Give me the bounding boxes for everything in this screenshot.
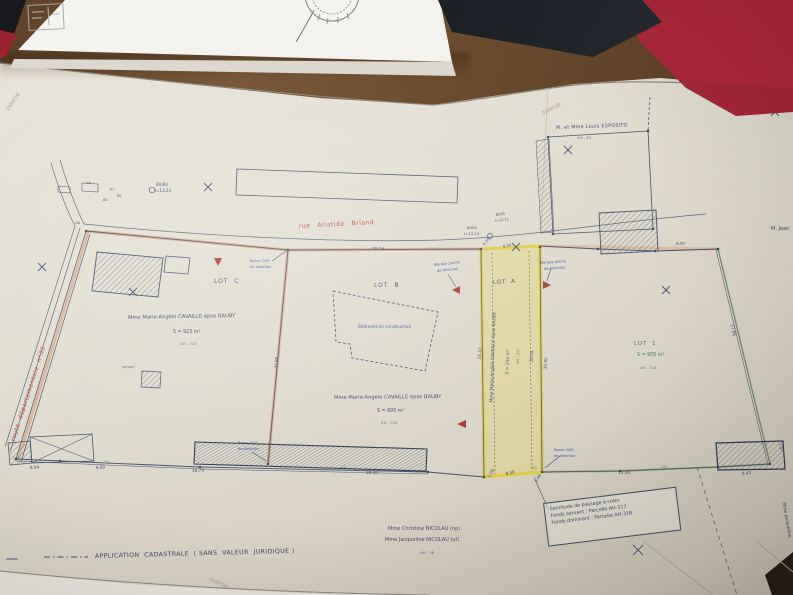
- plan-title: APPLICATION CADASTRALE ( SANS VALEUR JUR…: [95, 548, 295, 560]
- point-number: 114: [13, 457, 19, 461]
- dim: 32.88: [274, 357, 280, 369]
- borne-label: de direction: [238, 447, 259, 451]
- owner-nicolau-2: Mme Jacqueline NICOLAU (uf): [385, 538, 459, 544]
- dim: 3.97: [777, 443, 784, 453]
- dim: 8.97: [676, 242, 685, 247]
- sheet-number: 2109790: [208, 577, 228, 590]
- dim: 8.30: [502, 243, 511, 249]
- street-name: rue Aristide Briand: [299, 220, 375, 231]
- point-label: GA: [86, 181, 91, 185]
- lot-b-title: LOT B: [374, 283, 399, 290]
- lot-a-title: LOT A: [493, 279, 516, 286]
- dim: 28.04: [530, 350, 536, 362]
- marque-label: de direction: [544, 266, 566, 272]
- neighbor-bottom-right: Mme Jacqueline: [780, 502, 791, 538]
- benchmark-label: BV85: [496, 212, 506, 217]
- point-number: 111: [531, 467, 537, 471]
- lot-c-area: S = 923 m²: [173, 330, 200, 336]
- lot-c-owner: Mme Marie-Angèle CAVAILLE épse BAUBY: [128, 314, 235, 322]
- dim: 28.19: [372, 247, 384, 252]
- lot-a-ref: AH - 317: [516, 348, 521, 364]
- seal-stamp-icon: [290, 0, 380, 60]
- marque-label: Marque peinte: [540, 259, 566, 265]
- dim: 25.38: [618, 471, 630, 476]
- point-label: RE: [117, 194, 122, 198]
- dim: 6.30: [482, 237, 491, 246]
- dim: 30.90: [544, 357, 550, 369]
- sheet-number: 2109728: [542, 103, 562, 117]
- benchmark-label: BV-BU: [156, 183, 168, 188]
- borne-label: Borne OGE: [238, 441, 258, 445]
- dim: 8.43: [742, 471, 752, 477]
- dim: 0.46: [534, 474, 543, 484]
- dim: 26.10: [478, 347, 484, 359]
- dim: 18.79: [192, 469, 204, 474]
- lot-1-ref: AH - 316: [640, 366, 656, 370]
- dim: 28.19: [366, 471, 378, 476]
- dim: 1.00: [487, 469, 496, 479]
- point-number: 112: [340, 466, 346, 470]
- point-label: 86: [103, 198, 107, 202]
- dim: 8.38: [506, 470, 516, 476]
- lot-1-title: LOT 1: [634, 341, 656, 347]
- road-name: route départementale n°30: [11, 346, 48, 443]
- dim: 27.06: [729, 324, 737, 337]
- lot-b-area: S = 895 m²: [377, 409, 404, 415]
- neighbor-right: M. Jean: [771, 227, 789, 233]
- point-number: 113: [103, 461, 109, 465]
- scale-note-box: [27, 3, 64, 31]
- lot-b-ref: AH - 318: [381, 421, 397, 425]
- marque-label: de direction: [437, 267, 459, 273]
- lot-1-area: S = 905 m²: [637, 353, 664, 359]
- owner-esposito: M. et Mme Louis ESPOSITO: [556, 123, 628, 131]
- dim: 8.94: [30, 465, 40, 470]
- borne-label: Borne OGE: [250, 259, 270, 263]
- borne-label: de direction: [554, 454, 575, 458]
- point-number: 110: [661, 466, 667, 470]
- benchmark-value: I=13.24: [155, 189, 171, 194]
- desk-photo: APPLICATION CADASTRALE ( SANS VALEUR JUR…: [0, 0, 793, 595]
- parcel-ref-nicolau: AH - 38: [420, 551, 434, 555]
- lot-c-title: LOT C: [214, 279, 240, 286]
- garage-label: garage: [122, 365, 135, 369]
- point-label: PT: [110, 188, 114, 192]
- benchmark-label: BV85: [467, 226, 477, 230]
- borne-label: Borne OGE: [554, 448, 574, 452]
- lot-b-owner: Mme Marie-Angèle CAVAILLE épse BAUBY: [334, 395, 441, 402]
- lot-c-ref: AH - 318: [180, 342, 196, 346]
- parcel-ref-esposito: AH - 45: [577, 136, 591, 140]
- benchmark-value: I=13.11: [495, 217, 509, 223]
- sheet-number: 2109776: [6, 93, 22, 112]
- building-label: Bâtiment en construction: [358, 325, 411, 330]
- point-label: GA: [75, 221, 80, 225]
- borne-label: de direction: [250, 265, 271, 269]
- lot-a-area: S = 252 m²: [505, 349, 511, 374]
- lot-a-owner: Mme Marie-Angèle CAVAILLE épse BAUBY: [489, 312, 497, 403]
- benchmark-value: I=13.15: [464, 232, 479, 236]
- dim: 8.69: [96, 466, 106, 471]
- owner-nicolau-1: Mme Christine NICOLAU (np): [388, 527, 460, 533]
